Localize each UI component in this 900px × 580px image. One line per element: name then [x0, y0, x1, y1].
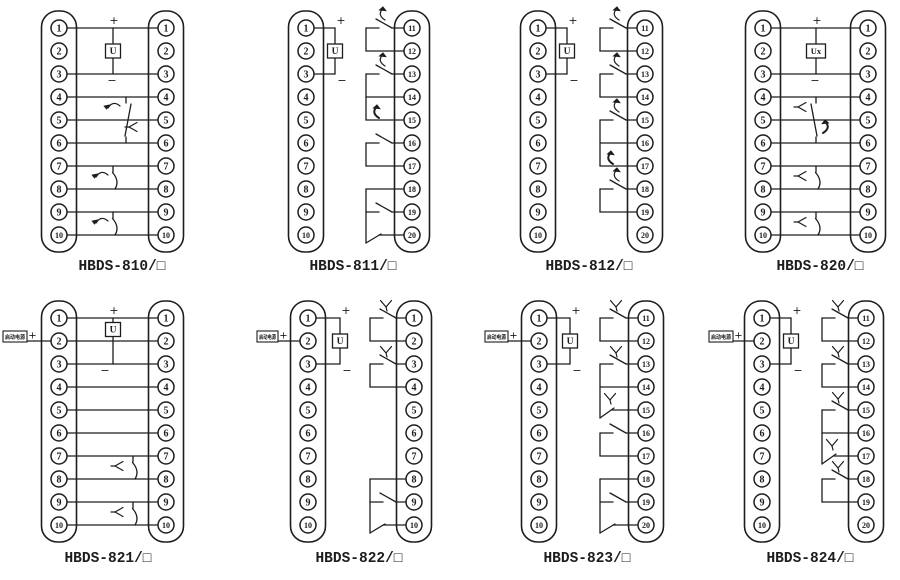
reset-arrow-icon — [372, 104, 381, 109]
terminal-number: 8 — [57, 475, 62, 486]
fork-icon — [832, 446, 833, 450]
fork-icon — [381, 347, 392, 354]
terminal-number: 2 — [164, 47, 169, 58]
terminal-number: 5 — [761, 116, 766, 127]
terminal-number: 12 — [408, 47, 416, 56]
fork-icon — [798, 103, 806, 112]
voltage-coil-label: U — [332, 47, 339, 57]
reset-arrow-icon — [612, 6, 621, 11]
terminal-number: 18 — [641, 185, 649, 194]
polarity-minus: − — [100, 364, 109, 377]
terminal-number: 2 — [866, 47, 871, 58]
reset-arrow-icon — [612, 52, 621, 57]
schematic-sheet: HBDS-810/□ +−U1234567891012345678910 HBD… — [0, 0, 900, 580]
terminal-number: 15 — [862, 406, 870, 415]
terminal-number: 1 — [304, 24, 309, 35]
terminal-number: 13 — [642, 360, 650, 369]
diagram-hbds-824: HBDS-824/□ +−U启动电源+123456789101112131415… — [709, 301, 884, 568]
fork-icon — [381, 301, 392, 308]
terminal-number: 5 — [57, 116, 62, 127]
diagram-hbds-811: HBDS-811/□ +−U12345678910111213141516171… — [289, 6, 430, 275]
fork-icon — [616, 307, 617, 311]
terminal-number: 18 — [642, 475, 650, 484]
terminal-number: 8 — [760, 475, 765, 486]
model-label-hbds-812: HBDS-812/□ — [545, 259, 632, 275]
terminal-number: 3 — [57, 70, 62, 81]
terminal-number: 19 — [642, 498, 650, 507]
fork-icon — [611, 347, 622, 354]
terminal-number: 2 — [306, 337, 311, 348]
voltage-coil-label: U — [337, 337, 344, 347]
polarity-minus: − — [107, 74, 116, 87]
terminal-number: 10 — [534, 231, 542, 240]
model-label-hbds-824: HBDS-824/□ — [766, 551, 853, 567]
fork-icon — [386, 353, 387, 357]
contact-blade — [380, 355, 396, 364]
reset-arrow-icon — [108, 103, 120, 108]
fork-icon — [838, 307, 839, 311]
contact-blade — [113, 173, 118, 190]
terminal-number: 7 — [57, 162, 62, 173]
terminal-number: 19 — [862, 498, 870, 507]
terminal-number: 4 — [761, 93, 766, 104]
terminal-number: 10 — [758, 521, 766, 530]
terminal-number: 5 — [536, 116, 541, 127]
fork-icon — [115, 508, 123, 517]
terminal-number: 3 — [306, 360, 311, 371]
diagram-hbds-822: HBDS-822/□ +−U启动电源+123456789101234567891… — [257, 301, 432, 568]
terminal-number: 6 — [164, 139, 169, 150]
terminal-number: 10 — [759, 231, 767, 240]
terminal-number: 5 — [164, 116, 169, 127]
terminal-number: 4 — [57, 93, 62, 104]
terminal-number: 1 — [537, 314, 542, 325]
terminal-number: 20 — [408, 231, 416, 240]
terminal-number: 1 — [761, 24, 766, 35]
terminal-number: 1 — [866, 24, 871, 35]
diagram-hbds-823: HBDS-823/□ +−U启动电源+123456789101112131415… — [485, 301, 664, 568]
polarity-minus: − — [569, 74, 578, 87]
terminal-number: 17 — [641, 162, 649, 171]
terminal-number: 5 — [537, 406, 542, 417]
polarity-plus: + — [792, 304, 801, 317]
terminal-number: 6 — [304, 139, 309, 150]
fork-icon — [833, 462, 844, 469]
fork-icon — [833, 347, 844, 354]
voltage-coil-label: U — [567, 337, 574, 347]
terminal-number: 4 — [412, 383, 417, 394]
contact-blade — [610, 180, 626, 189]
polarity-minus: − — [793, 364, 802, 377]
reset-arrow-icon — [96, 218, 108, 223]
terminal-number: 7 — [761, 162, 766, 173]
voltage-coil-label: Ux — [811, 46, 822, 56]
polarity-minus: − — [572, 364, 581, 377]
contact-blade — [816, 173, 821, 190]
diagram-hbds-821: HBDS-821/□ +−U启动电源+123456789101234567891… — [3, 301, 184, 567]
terminal-number: 3 — [304, 70, 309, 81]
terminal-number: 3 — [164, 70, 169, 81]
terminal-number: 2 — [57, 337, 62, 348]
terminal-number: 7 — [537, 452, 542, 463]
terminal-number: 11 — [641, 24, 649, 33]
terminal-number: 16 — [862, 429, 870, 438]
terminal-number: 6 — [760, 429, 765, 440]
terminal-number: 12 — [862, 337, 870, 346]
terminal-number: 3 — [164, 360, 169, 371]
terminal-number: 10 — [162, 231, 170, 240]
feed-label: 启动电源 — [711, 333, 731, 341]
feed-label: 启动电源 — [487, 333, 506, 341]
fork-icon — [605, 394, 616, 401]
terminal-number: 10 — [410, 521, 418, 530]
terminal-number: 5 — [57, 406, 62, 417]
terminal-number: 3 — [866, 70, 871, 81]
terminal-number: 9 — [412, 498, 417, 509]
model-label-hbds-822: HBDS-822/□ — [315, 551, 402, 567]
terminal-number: 7 — [304, 162, 309, 173]
terminal-number: 9 — [537, 498, 542, 509]
terminal-number: 8 — [537, 475, 542, 486]
contact-blade — [816, 219, 821, 236]
terminal-number: 4 — [304, 93, 309, 104]
terminal-number: 9 — [761, 208, 766, 219]
terminal-number: 2 — [164, 337, 169, 348]
fork-icon — [610, 400, 611, 404]
terminal-number: 1 — [306, 314, 311, 325]
terminal-number: 2 — [760, 337, 765, 348]
terminal-number: 4 — [164, 383, 169, 394]
terminal-number: 15 — [641, 116, 649, 125]
voltage-coil-label: U — [110, 326, 117, 336]
contact-blade — [832, 470, 848, 479]
model-label-hbds-823: HBDS-823/□ — [543, 551, 630, 567]
terminal-number: 6 — [164, 429, 169, 440]
terminal-number: 14 — [641, 93, 649, 102]
feed-label: 启动电源 — [259, 333, 276, 341]
terminal-number: 12 — [641, 47, 649, 56]
terminal-number: 1 — [760, 314, 765, 325]
contact-blade — [610, 309, 626, 318]
polarity-plus: + — [571, 304, 580, 317]
terminal-number: 17 — [642, 452, 650, 461]
fork-icon — [827, 440, 838, 447]
contact-blade — [380, 493, 396, 502]
terminal-number: 7 — [760, 452, 765, 463]
contact-blade — [376, 65, 392, 74]
fork-icon — [115, 462, 123, 471]
terminal-number: 13 — [862, 360, 870, 369]
terminal-number: 7 — [164, 162, 169, 173]
feed-plus: + — [509, 331, 517, 342]
fork-icon — [833, 301, 844, 308]
terminal-number: 4 — [536, 93, 541, 104]
terminal-number: 9 — [164, 208, 169, 219]
model-label-hbds-810: HBDS-810/□ — [78, 259, 165, 275]
terminal-number: 5 — [412, 406, 417, 417]
terminal-number: 11 — [862, 314, 870, 323]
terminal-number: 14 — [642, 383, 650, 392]
contact-blade — [376, 203, 392, 212]
terminal-number: 5 — [866, 116, 871, 127]
terminal-number: 9 — [866, 208, 871, 219]
terminal-number: 10 — [864, 231, 872, 240]
terminal-number: 14 — [862, 383, 870, 392]
terminal-number: 1 — [57, 24, 62, 35]
terminal-number: 10 — [304, 521, 312, 530]
terminal-number: 10 — [55, 521, 63, 530]
terminal-number: 4 — [57, 383, 62, 394]
contact-blade — [832, 309, 848, 318]
contact-blade — [832, 401, 848, 410]
polarity-minus: − — [337, 74, 346, 87]
terminal-number: 8 — [536, 185, 541, 196]
voltage-coil-label: U — [564, 47, 571, 57]
terminal-number: 1 — [164, 24, 169, 35]
terminal-number: 1 — [412, 314, 417, 325]
terminal-number: 11 — [642, 314, 650, 323]
contact-blade — [133, 509, 138, 526]
terminal-number: 7 — [866, 162, 871, 173]
terminal-number: 20 — [642, 521, 650, 530]
terminal-number: 9 — [760, 498, 765, 509]
terminal-number: 7 — [306, 452, 311, 463]
fork-icon — [386, 307, 387, 311]
fork-icon — [833, 393, 844, 400]
terminal-number: 3 — [57, 360, 62, 371]
terminal-number: 10 — [55, 231, 63, 240]
terminal-number: 10 — [162, 521, 170, 530]
terminal-number: 7 — [536, 162, 541, 173]
terminal-number: 6 — [57, 429, 62, 440]
terminal-number: 6 — [412, 429, 417, 440]
fork-icon — [838, 353, 839, 357]
terminal-number: 2 — [412, 337, 417, 348]
fork-icon — [798, 218, 806, 227]
feed-label: 启动电源 — [5, 333, 25, 341]
model-label-hbds-820: HBDS-820/□ — [776, 259, 863, 275]
fork-icon — [616, 353, 617, 357]
terminal-number: 3 — [537, 360, 542, 371]
contact-blade — [113, 219, 118, 236]
polarity-minus: − — [810, 74, 819, 87]
terminal-number: 2 — [304, 47, 309, 58]
terminal-number: 8 — [866, 185, 871, 196]
fork-icon — [798, 172, 806, 181]
terminal-number: 20 — [641, 231, 649, 240]
contact-blade — [610, 493, 626, 502]
contact-blade — [376, 19, 392, 28]
terminal-number: 4 — [760, 383, 765, 394]
terminal-number: 18 — [408, 185, 416, 194]
wiring-diagram-canvas: HBDS-810/□ +−U1234567891012345678910 HBD… — [0, 0, 900, 580]
terminal-number: 16 — [641, 139, 649, 148]
terminal-number: 8 — [306, 475, 311, 486]
terminal-number: 2 — [761, 47, 766, 58]
terminal-number: 20 — [862, 521, 870, 530]
terminal-number: 8 — [57, 185, 62, 196]
contact-blade — [610, 19, 626, 28]
terminal-number: 3 — [536, 70, 541, 81]
terminal-number: 15 — [642, 406, 650, 415]
polarity-plus: + — [341, 304, 350, 317]
terminal-number: 7 — [57, 452, 62, 463]
terminal-number: 10 — [535, 521, 543, 530]
terminal-number: 5 — [164, 406, 169, 417]
reset-arrow-icon — [96, 172, 108, 177]
feed-plus: + — [734, 331, 742, 342]
terminal-number: 3 — [412, 360, 417, 371]
polarity-plus: + — [109, 304, 118, 317]
terminal-number: 9 — [57, 498, 62, 509]
terminal-number: 4 — [164, 93, 169, 104]
terminal-number: 4 — [866, 93, 871, 104]
model-label-hbds-811: HBDS-811/□ — [309, 259, 396, 275]
terminal-number: 5 — [304, 116, 309, 127]
contact-blade — [610, 65, 626, 74]
terminal-number: 1 — [536, 24, 541, 35]
contact-blade — [376, 134, 392, 143]
terminal-number: 9 — [536, 208, 541, 219]
terminal-number: 1 — [57, 314, 62, 325]
contact-blade — [610, 424, 626, 433]
terminal-number: 13 — [641, 70, 649, 79]
diagram-hbds-810: HBDS-810/□ +−U1234567891012345678910 — [42, 11, 184, 275]
reset-arrow-icon — [378, 6, 387, 11]
terminal-number: 6 — [761, 139, 766, 150]
terminal-number: 6 — [537, 429, 542, 440]
diagram-hbds-812: HBDS-812/□ +−U12345678910111213141516171… — [521, 6, 663, 275]
terminal-number: 19 — [408, 208, 416, 217]
terminal-number: 19 — [641, 208, 649, 217]
terminal-number: 8 — [304, 185, 309, 196]
terminal-number: 8 — [761, 185, 766, 196]
fork-icon — [838, 399, 839, 403]
terminal-number: 8 — [412, 475, 417, 486]
polarity-minus: − — [342, 364, 351, 377]
model-label-hbds-821: HBDS-821/□ — [64, 551, 151, 567]
terminal-number: 9 — [164, 498, 169, 509]
terminal-number: 1 — [164, 314, 169, 325]
voltage-coil-label: U — [110, 47, 117, 57]
terminal-number: 2 — [537, 337, 542, 348]
terminal-number: 7 — [164, 452, 169, 463]
reset-arrow-icon — [378, 52, 387, 57]
terminal-number: 16 — [642, 429, 650, 438]
terminal-number: 13 — [408, 70, 416, 79]
terminal-number: 18 — [862, 475, 870, 484]
terminal-number: 6 — [536, 139, 541, 150]
terminal-number: 7 — [412, 452, 417, 463]
terminal-number: 4 — [306, 383, 311, 394]
terminal-number: 6 — [306, 429, 311, 440]
terminal-number: 3 — [760, 360, 765, 371]
terminal-number: 4 — [537, 383, 542, 394]
contact-blade — [610, 111, 626, 120]
feed-plus: + — [279, 331, 287, 342]
terminal-number: 3 — [761, 70, 766, 81]
reset-arrow-icon — [612, 98, 621, 103]
terminal-number: 5 — [306, 406, 311, 417]
terminal-number: 15 — [408, 116, 416, 125]
contact-blade — [133, 463, 138, 480]
terminal-number: 12 — [642, 337, 650, 346]
contact-blade — [832, 355, 848, 364]
polarity-plus: + — [812, 14, 821, 27]
terminal-number: 9 — [57, 208, 62, 219]
terminal-number: 8 — [164, 185, 169, 196]
terminal-number: 6 — [866, 139, 871, 150]
terminal-number: 6 — [57, 139, 62, 150]
terminal-number: 2 — [536, 47, 541, 58]
polarity-plus: + — [336, 14, 345, 27]
fork-icon — [838, 468, 839, 472]
terminal-number: 8 — [164, 475, 169, 486]
terminal-number: 10 — [302, 231, 310, 240]
reset-arrow-icon — [612, 167, 621, 172]
contact-blade — [610, 355, 626, 364]
polarity-plus: + — [568, 14, 577, 27]
fork-icon — [611, 301, 622, 308]
terminal-number: 17 — [408, 162, 416, 171]
terminal-number: 9 — [306, 498, 311, 509]
contact-blade — [380, 309, 396, 318]
terminal-number: 11 — [408, 24, 416, 33]
terminal-number: 14 — [408, 93, 416, 102]
feed-plus: + — [28, 331, 36, 342]
diagram-hbds-820: HBDS-820/□ +−Ux1234567891012345678910 — [746, 11, 886, 275]
reset-arrow-icon — [606, 150, 615, 155]
terminal-number: 5 — [760, 406, 765, 417]
voltage-coil-label: U — [788, 337, 795, 347]
terminal-number: 17 — [862, 452, 870, 461]
terminal-number: 16 — [408, 139, 416, 148]
terminal-number: 9 — [304, 208, 309, 219]
polarity-plus: + — [109, 14, 118, 27]
fork-icon — [129, 123, 137, 132]
terminal-number: 2 — [57, 47, 62, 58]
